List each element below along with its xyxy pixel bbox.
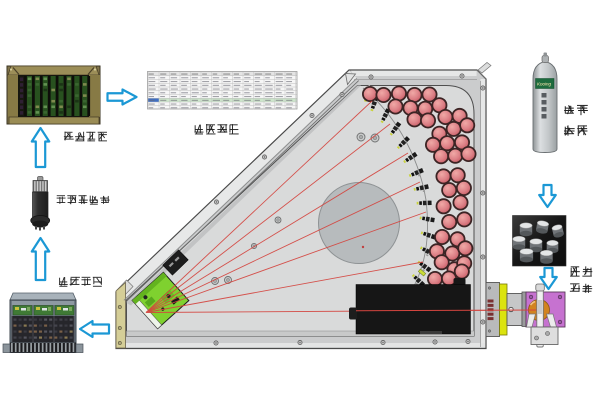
svg-text:Kooing: Kooing [537, 82, 552, 87]
